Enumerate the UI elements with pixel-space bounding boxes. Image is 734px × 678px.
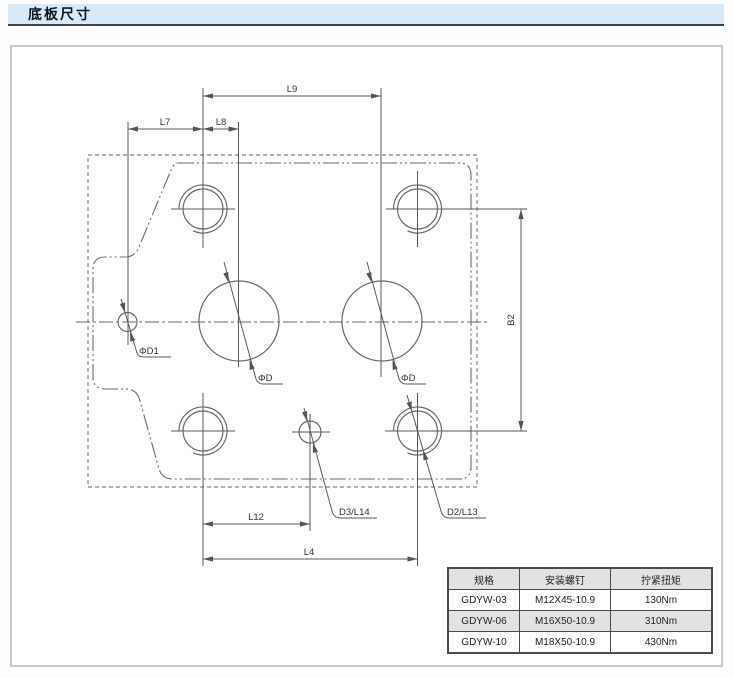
cell-screw: M18X50-10.9 xyxy=(520,632,611,654)
table-row: GDYW-06 M16X50-10.9 310Nm xyxy=(448,611,712,632)
cell-torque: 310Nm xyxy=(611,611,713,632)
spec-table-header-row: 规格 安装螺钉 拧紧扭矩 xyxy=(448,568,712,590)
cell-torque: 130Nm xyxy=(611,590,713,611)
cell-spec: GDYW-10 xyxy=(448,632,520,654)
cell-spec: GDYW-06 xyxy=(448,611,520,632)
col-header-spec: 规格 xyxy=(448,568,520,590)
cell-torque: 430Nm xyxy=(611,632,713,654)
col-header-screw: 安装螺钉 xyxy=(520,568,611,590)
table-row: GDYW-03 M12X45-10.9 130Nm xyxy=(448,590,712,611)
section-title: 底板尺寸 xyxy=(8,4,724,25)
cell-screw: M12X45-10.9 xyxy=(520,590,611,611)
cell-spec: GDYW-03 xyxy=(448,590,520,611)
table-row: GDYW-10 M18X50-10.9 430Nm xyxy=(448,632,712,654)
section-title-bar: 底板尺寸 xyxy=(8,4,724,26)
cell-screw: M16X50-10.9 xyxy=(520,611,611,632)
spec-table: 规格 安装螺钉 拧紧扭矩 GDYW-03 M12X45-10.9 130Nm G… xyxy=(447,567,713,654)
col-header-torque: 拧紧扭矩 xyxy=(611,568,713,590)
